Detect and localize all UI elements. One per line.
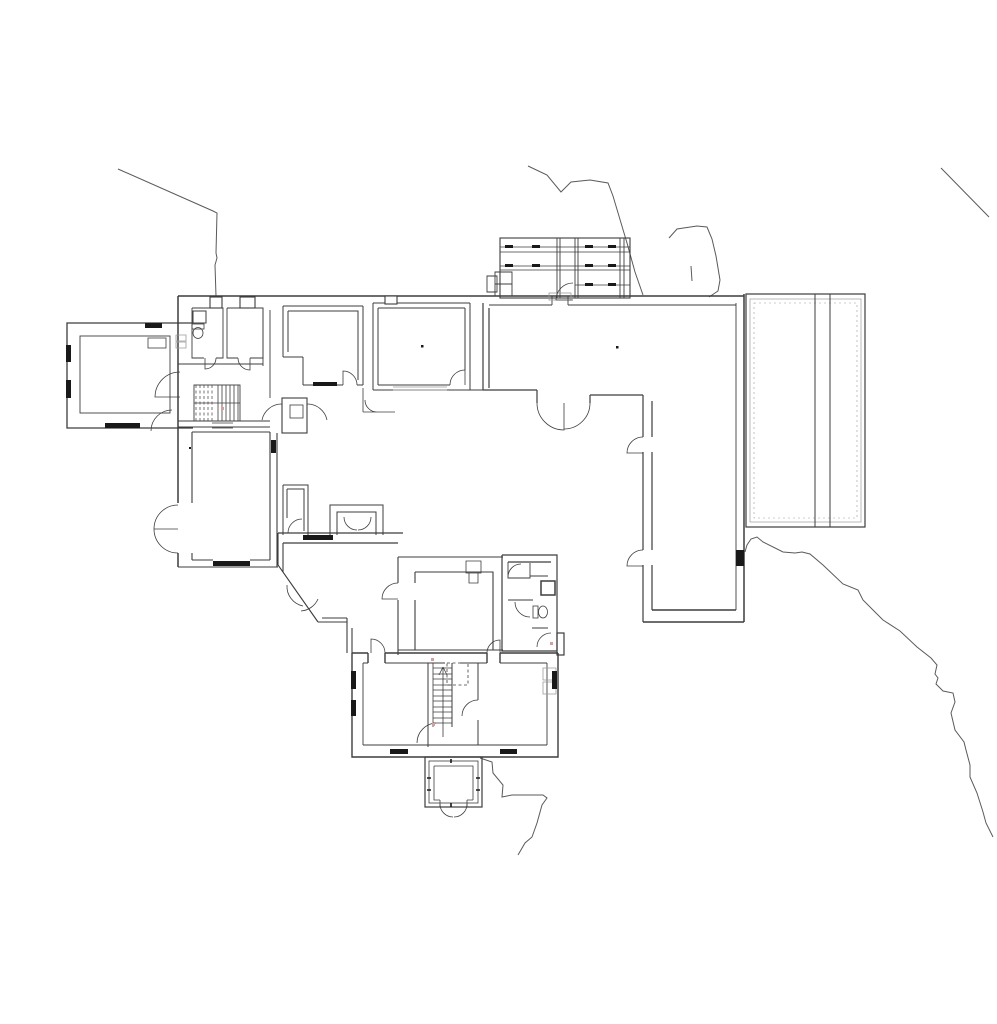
door-arc-porch-room (288, 519, 302, 533)
wall-living-top-inner (489, 296, 736, 305)
pergola-dash-b3 (585, 264, 593, 267)
window-west-wing-b (66, 380, 71, 398)
window-dining-east (271, 440, 276, 453)
bay-window-structure (330, 505, 383, 535)
terrain-contour-north-knoll (669, 226, 720, 297)
door-arc-dining-double (154, 505, 178, 553)
porch-room-courtyard (283, 485, 308, 535)
window-west-wing-top (145, 323, 162, 328)
door-arc-wing-south (627, 550, 643, 566)
suite-partitions (508, 600, 548, 628)
room-dining-walls (178, 432, 278, 567)
room-four-walls (373, 303, 483, 390)
pergola-dash-a2 (532, 245, 540, 248)
pergola-dash-b1 (505, 264, 513, 267)
door-arc-chimney-west (262, 404, 282, 420)
pergola-dash-a3 (585, 245, 593, 248)
door-arc-bath (205, 358, 216, 369)
cad-mark-stair-lower-b (432, 723, 435, 726)
room-bath-walls (192, 308, 223, 358)
pergola-dash-a4 (608, 245, 616, 248)
terrain-contour-northwest (118, 169, 217, 296)
kitchen-walls (398, 557, 503, 655)
window-south-bldg-left-a (351, 671, 356, 689)
stair-lower-treads (433, 663, 452, 727)
chimney-courtyard-west-flue (290, 405, 303, 418)
wall-wing-bottom (643, 610, 744, 622)
suite-chimney (557, 633, 564, 655)
suite-sink (541, 581, 555, 595)
terrace-inner (750, 299, 861, 522)
suite-shower (508, 562, 548, 578)
door-arc-suite-wc (515, 602, 530, 617)
wall-wing-left (643, 395, 652, 622)
door-arc-suite-shower (508, 564, 521, 577)
door-arc-french-left (537, 403, 564, 430)
suite-toilet-tank (533, 606, 538, 618)
window-south-bldg-right (552, 671, 557, 689)
cad-mark-suite (550, 642, 553, 645)
cad-mark-stair-lower-a (431, 658, 434, 661)
door-arc-hall-diagonal (287, 585, 318, 611)
terrace-dotted-edge (754, 303, 857, 518)
hall-bottom-wall (318, 618, 352, 653)
door-arc-chimney-east (307, 404, 327, 420)
window-south-bldg-bottom-a (390, 749, 408, 754)
door-arc-wing-north (627, 437, 643, 453)
stair-lower-arrow (439, 667, 447, 737)
pergola-dash-c1 (585, 283, 593, 286)
door-arc-south-room (462, 700, 478, 716)
chimney-box-top-b (240, 297, 255, 308)
pergola-dash-c2 (608, 283, 616, 286)
bathroom-shower-box (193, 311, 206, 323)
suite-toilet-bowl (539, 606, 548, 618)
door-arc-corridor-small (363, 388, 395, 412)
floor-plan-page (0, 0, 997, 1024)
floor-plan-svg (0, 0, 997, 1024)
chimney-box-top-a (210, 297, 222, 308)
column-dot-living (616, 346, 619, 349)
pergola-dash-a1 (505, 245, 513, 248)
west-wing-outer (67, 323, 193, 428)
door-arc-room-three (343, 371, 357, 385)
column-dot-room-four (421, 345, 424, 348)
south-building-inner (363, 663, 547, 745)
window-dining-south (213, 561, 250, 566)
porch-outer (425, 757, 482, 807)
wall-living-bottom (483, 303, 643, 403)
wall-dining-top (178, 421, 270, 427)
terrain-contour-north-center (528, 166, 643, 295)
west-wing-table (148, 338, 166, 348)
column-dot-dining (189, 447, 191, 449)
porch-mid (429, 761, 478, 803)
pergola-dash-b2 (532, 264, 540, 267)
window-south-bldg-bottom-b (500, 749, 517, 754)
terrain-contour-northeast (941, 168, 989, 217)
bathroom-toilet-tank (192, 324, 204, 329)
hall-west-diagonal (278, 533, 318, 622)
chimney-box-top-c (385, 296, 397, 304)
south-building-outer (352, 653, 558, 757)
room-two-walls (227, 308, 263, 358)
door-arc-suite-lower (537, 633, 551, 647)
window-west-wing-south (105, 423, 140, 428)
door-arc-porch-double (440, 804, 467, 817)
window-south-bldg-left-b (351, 700, 356, 716)
terrace-walkway-lines (815, 294, 830, 527)
porch-inner (434, 766, 473, 807)
terrace-outer (746, 294, 865, 527)
door-arc-south-entry-west (371, 639, 385, 653)
west-wing-inner (80, 336, 170, 413)
stair-landing-steps (212, 423, 233, 432)
terrain-contour-south (480, 758, 547, 855)
south-building-partitions (428, 663, 478, 747)
terrain-contour-east-slope (745, 537, 993, 837)
pergola-dash-b4 (608, 264, 616, 267)
window-room-three (313, 382, 337, 386)
door-arc-west-wing-interior (155, 372, 180, 397)
door-arc-bay-double (344, 517, 371, 530)
door-arc-french-right (564, 403, 590, 429)
window-west-wing-a (66, 345, 71, 362)
hall-north-wall (278, 533, 403, 543)
window-hall-south (303, 535, 333, 540)
door-arc-kitchen (382, 583, 398, 599)
door-arc-room-four (450, 370, 465, 385)
cad-mark-stair-upper (221, 407, 224, 410)
window-wing-east (736, 550, 744, 566)
